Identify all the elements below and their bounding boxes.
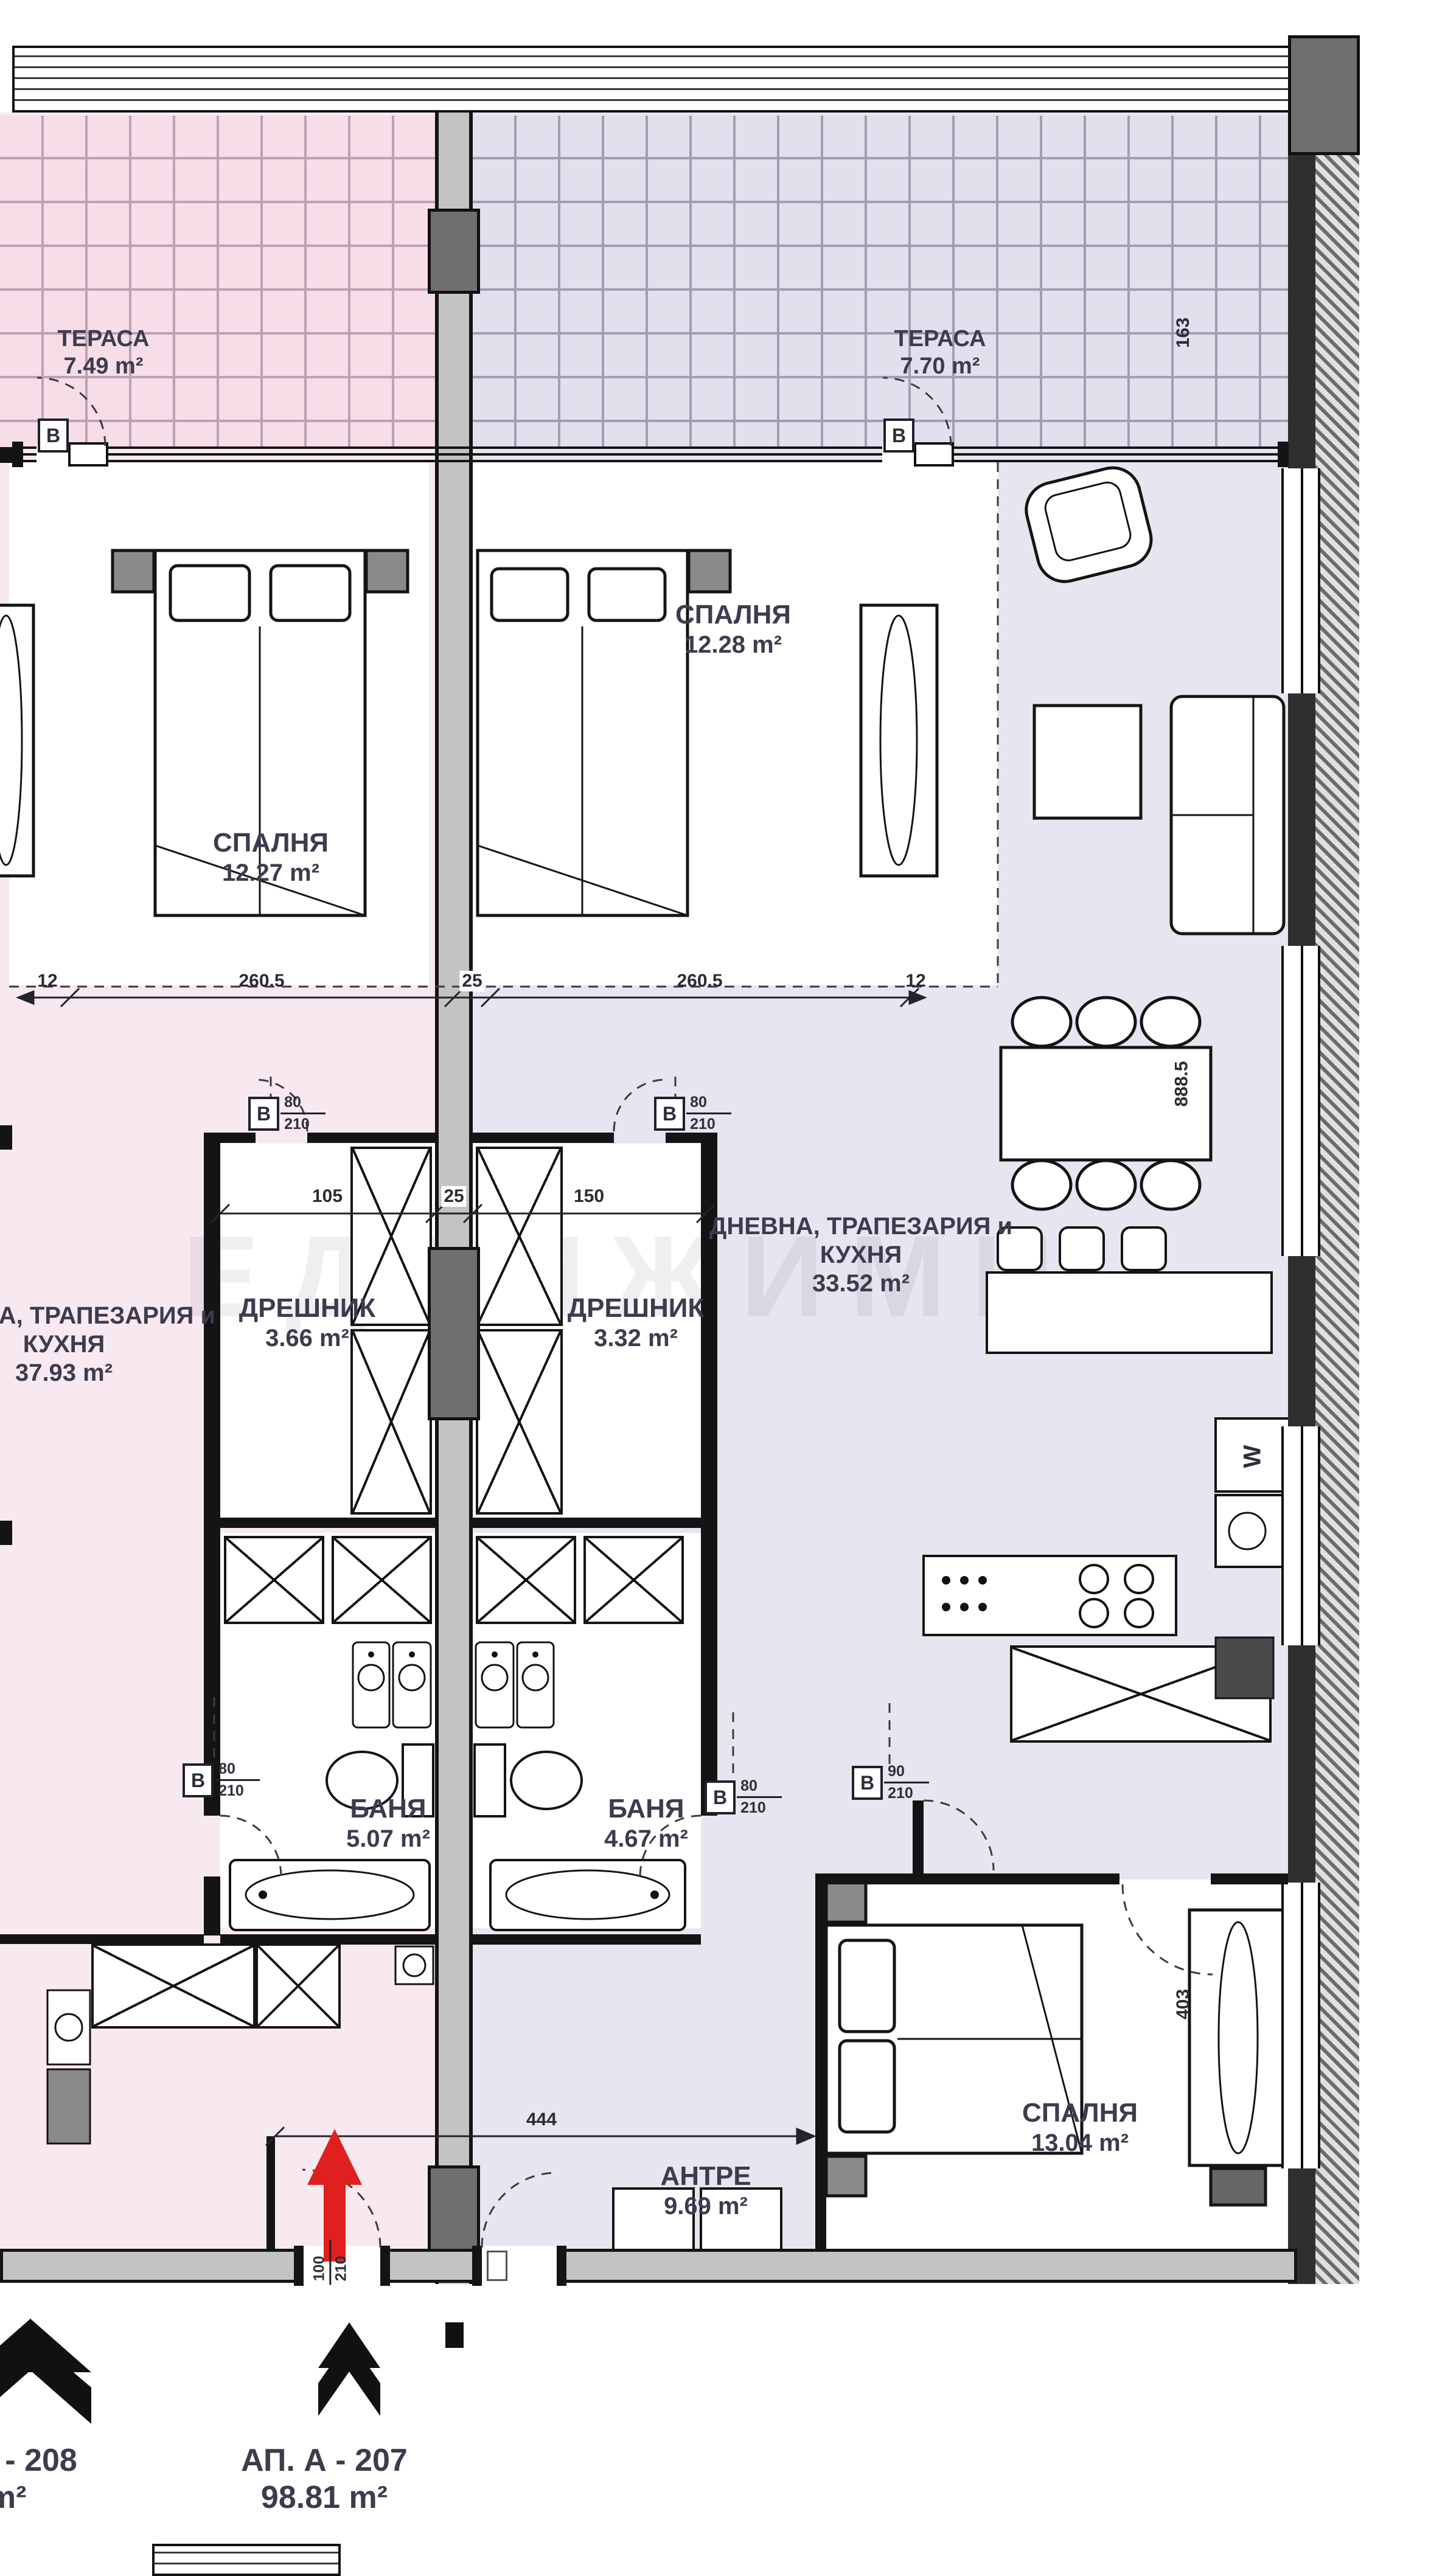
- dim-403: 403: [1173, 1989, 1194, 2019]
- dim-12-right: 12: [905, 971, 925, 991]
- door-arc: [220, 1816, 281, 1876]
- dim-163: 163: [1173, 318, 1194, 348]
- room-label-terrace-left: ТЕРАСА 7.49 m²: [58, 325, 150, 380]
- door-label-hall: В 90210: [852, 1764, 929, 1801]
- door-label-closet-right: В 80210: [654, 1095, 731, 1132]
- room-label-closet-left: ДРЕШНИК 3.66 m²: [239, 1293, 376, 1353]
- room-label-bedroom-bottom: СПАЛНЯ 13.04 m²: [1022, 2097, 1138, 2158]
- dim-150: 150: [574, 1186, 604, 1207]
- room-label-closet-right: ДРЕШНИК 3.32 m²: [568, 1293, 705, 1353]
- dim-888: 888.5: [1172, 1061, 1193, 1106]
- room-label-bath-right: БАНЯ 4.67 m²: [604, 1793, 688, 1853]
- door-label-bath-right: В 80210: [705, 1779, 782, 1816]
- room-label-living-right: ДНЕВНА, ТРАПЕЗАРИЯ и КУХНЯ 33.52 m²: [709, 1212, 1012, 1299]
- dim-25-center: 25: [459, 971, 484, 991]
- door-label-entry: 100210: [312, 2240, 349, 2286]
- room-label-living-left: ДНЕВНА, ТРАПЕЗАРИЯ и КУХНЯ 37.93 m²: [0, 1302, 215, 1388]
- door-arc: [482, 2173, 557, 2248]
- room-label-hall: АНТРЕ 9.69 m²: [660, 2161, 751, 2221]
- room-label-bath-left: БАНЯ 5.07 m²: [346, 1793, 430, 1853]
- entry-mark-right: [487, 2251, 507, 2281]
- dimension-lines: [18, 988, 925, 2145]
- room-label-bedroom-right: СПАЛНЯ 12.28 m²: [675, 599, 791, 659]
- dim-25-closet: 25: [441, 1186, 466, 1207]
- dim-260-left: 260.5: [239, 971, 284, 991]
- floor-plan: ЕДВИЖИМИ: [0, 0, 1445, 2576]
- door-label-closet-left: В 80210: [248, 1095, 326, 1132]
- dim-444: 444: [526, 2109, 557, 2130]
- appliance-glyph: W: [1239, 1445, 1266, 1468]
- dim-12-left: 12: [37, 971, 57, 991]
- room-label-terrace-right: ТЕРАСА 7.70 m²: [894, 325, 986, 380]
- room-label-bedroom-left: СПАЛНЯ 12.27 m²: [213, 827, 329, 887]
- door-label-terrace-left: В: [38, 418, 69, 453]
- dim-105: 105: [312, 1186, 343, 1207]
- door-arc: [924, 1800, 994, 1870]
- door-label-terrace-right: В: [883, 418, 914, 453]
- dim-260-right: 260.5: [677, 971, 722, 991]
- stair-chevron-arrows: [0, 2319, 464, 2424]
- apartment-label-207: АП. А - 207 98.81 m²: [241, 2442, 408, 2517]
- apartment-label-208-partial: АП. А - 208 0 m²: [0, 2442, 77, 2517]
- door-arc: [1123, 1884, 1213, 1974]
- door-label-bath-left: В 80210: [183, 1762, 260, 1799]
